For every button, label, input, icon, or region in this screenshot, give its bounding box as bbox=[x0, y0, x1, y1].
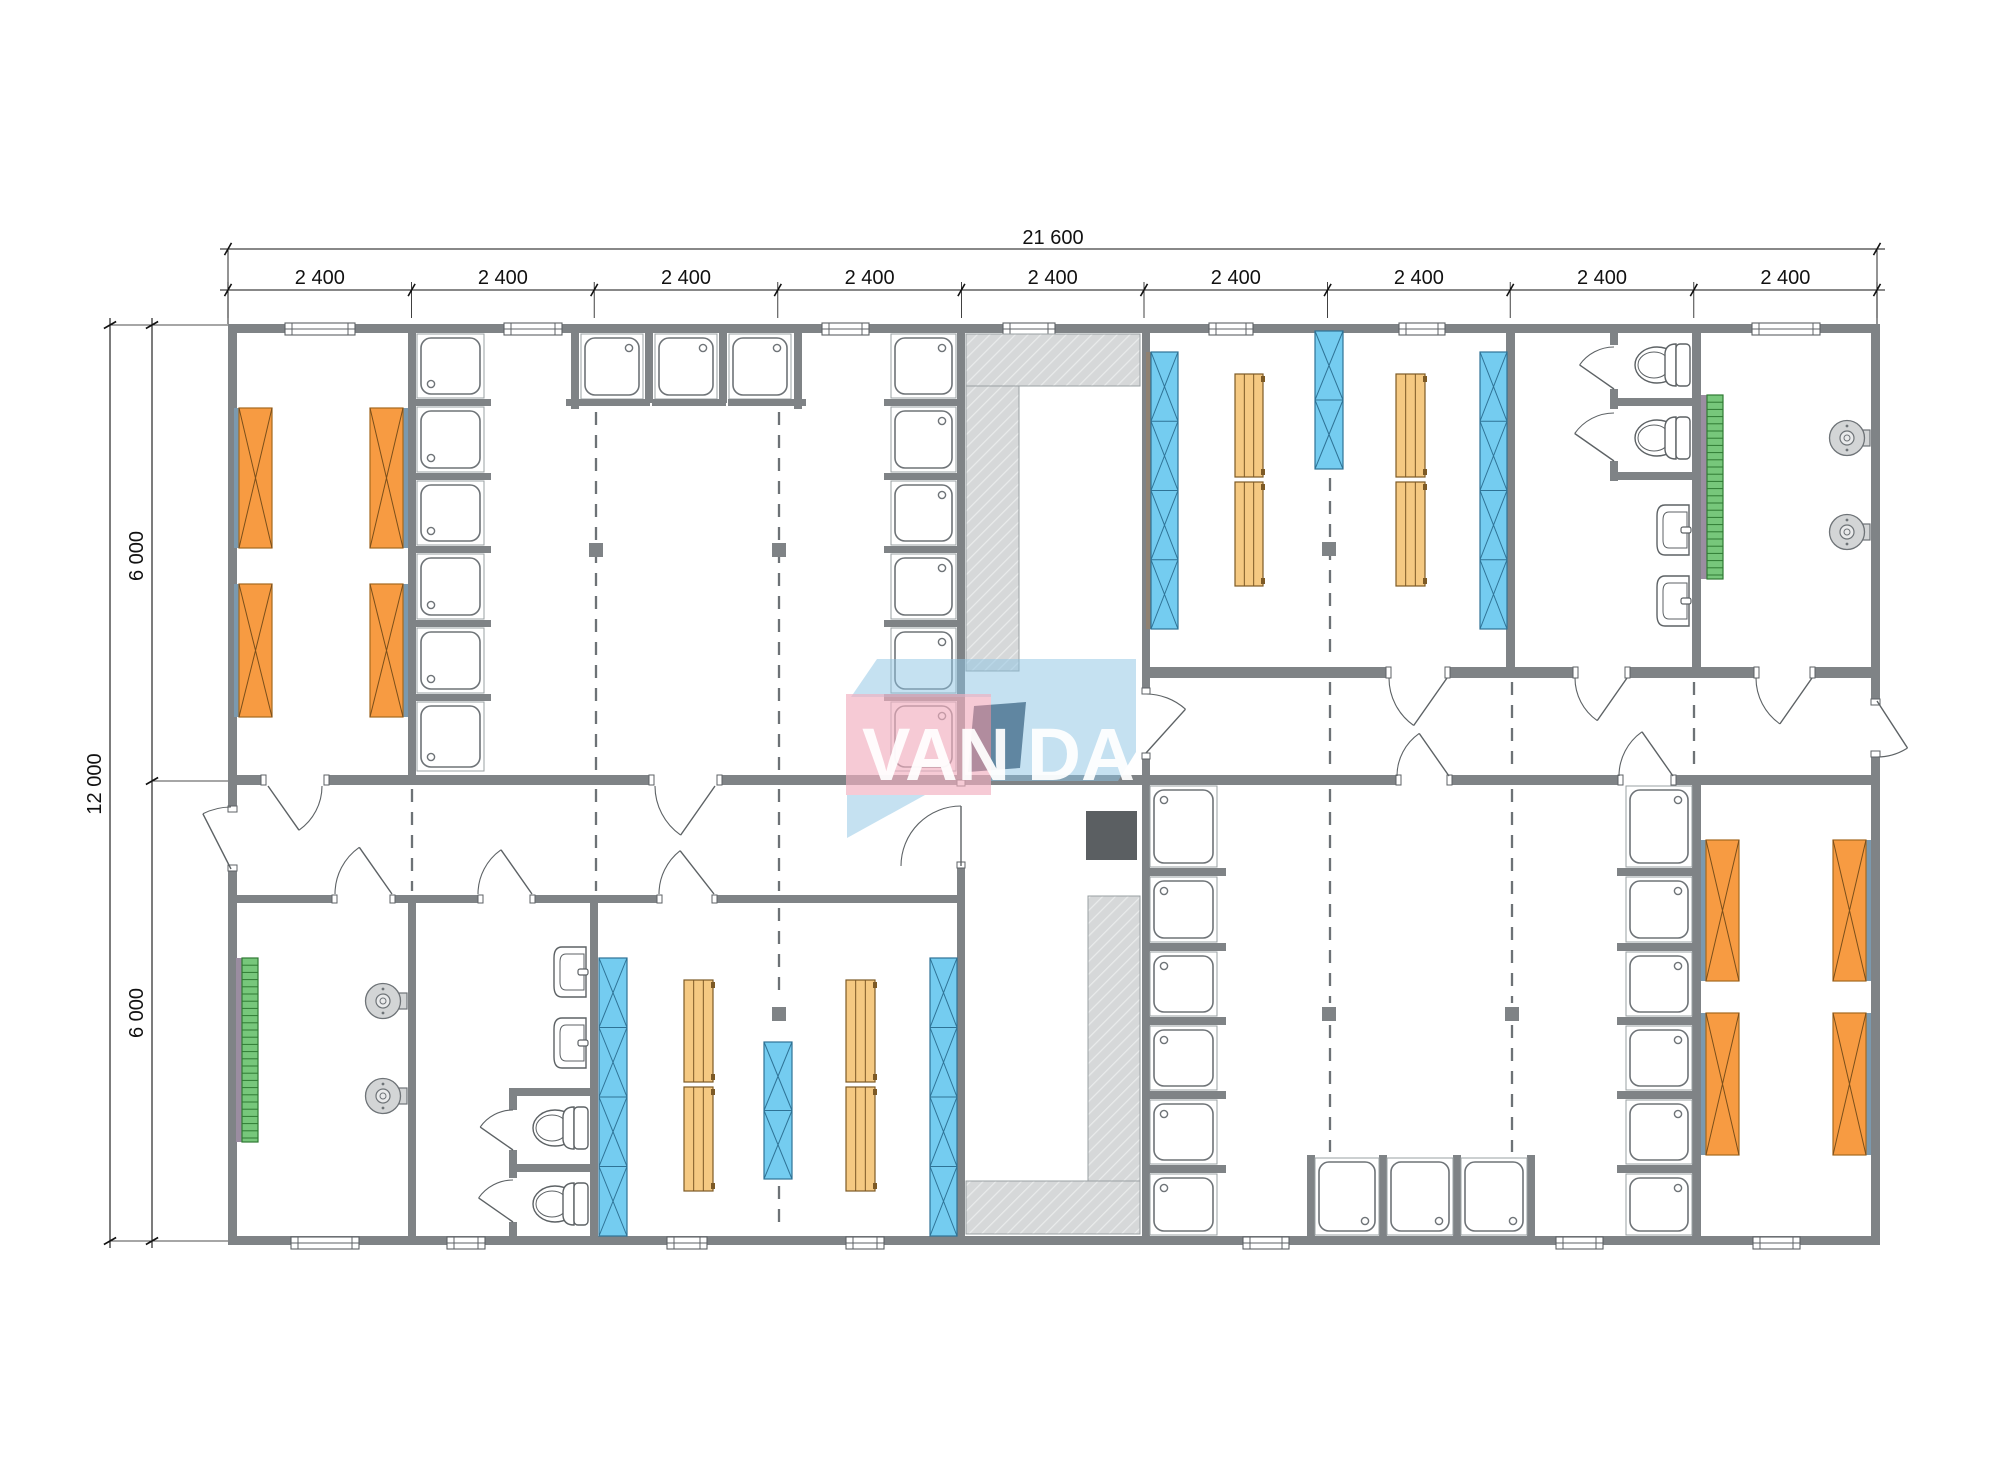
svg-text:2 400: 2 400 bbox=[1028, 267, 1078, 289]
svg-text:VAN: VAN bbox=[862, 713, 1010, 796]
svg-text:21 600: 21 600 bbox=[1022, 227, 1083, 249]
svg-text:12 000: 12 000 bbox=[84, 753, 106, 814]
svg-text:DA: DA bbox=[1027, 713, 1135, 796]
svg-text:2 400: 2 400 bbox=[845, 267, 895, 289]
svg-text:2 400: 2 400 bbox=[1394, 267, 1444, 289]
svg-text:2 400: 2 400 bbox=[1211, 267, 1261, 289]
svg-text:2 400: 2 400 bbox=[1577, 267, 1627, 289]
svg-text:2 400: 2 400 bbox=[661, 267, 711, 289]
svg-text:2 400: 2 400 bbox=[1760, 267, 1810, 289]
svg-text:2 400: 2 400 bbox=[295, 267, 345, 289]
svg-text:6 000: 6 000 bbox=[126, 988, 148, 1038]
svg-text:2 400: 2 400 bbox=[478, 267, 528, 289]
svg-text:6 000: 6 000 bbox=[126, 531, 148, 581]
